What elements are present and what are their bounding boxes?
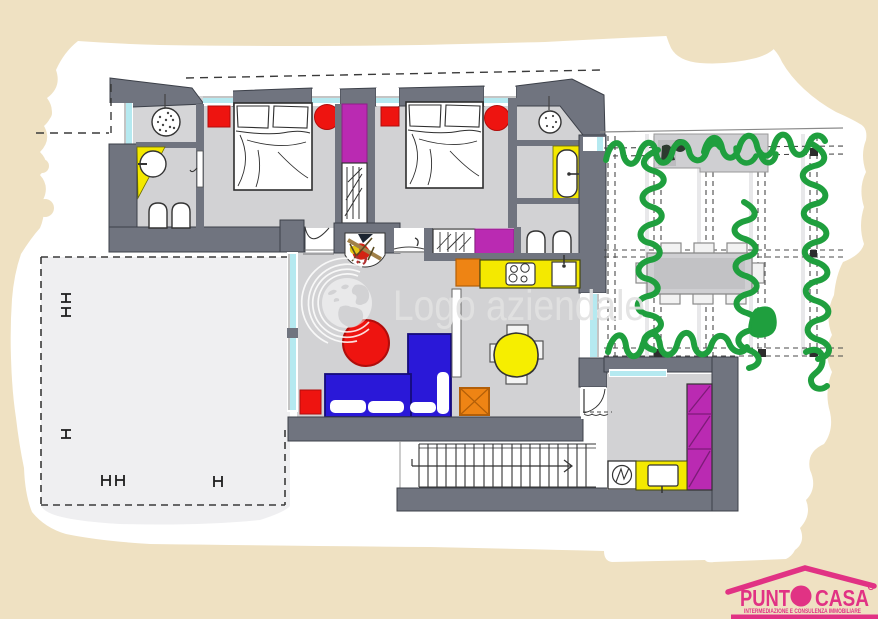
svg-text:INTERMEDIAZIONE E CONSULENZA I: INTERMEDIAZIONE E CONSULENZA IMMOBILIARE <box>744 608 861 615</box>
svg-text:Logo aziendale: Logo aziendale <box>393 282 645 330</box>
